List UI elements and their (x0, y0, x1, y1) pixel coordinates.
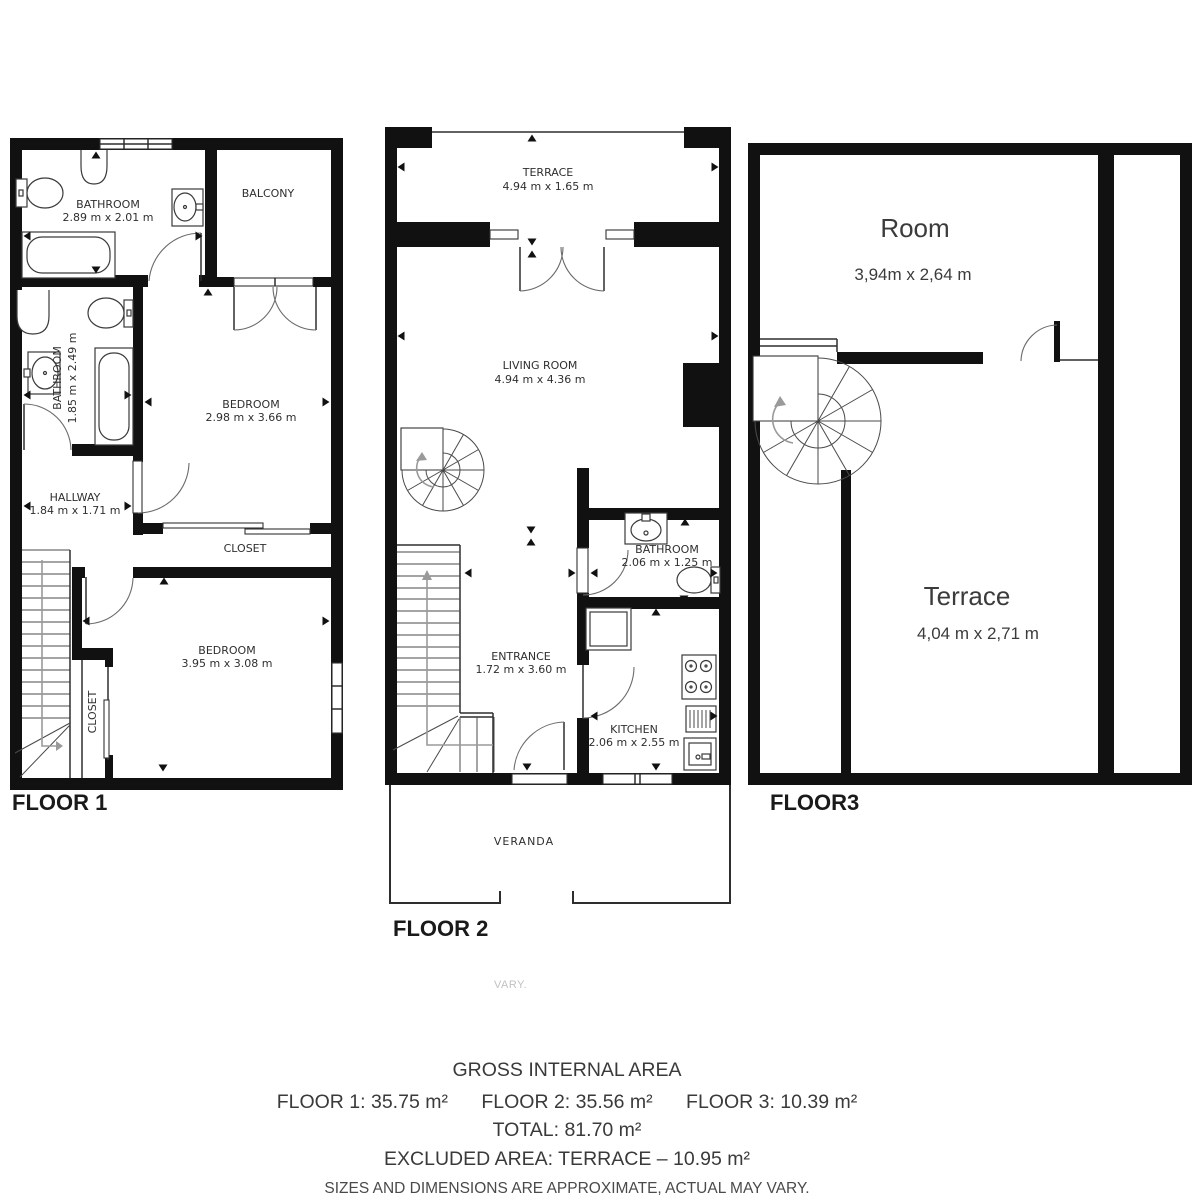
floor2-staircase (393, 545, 494, 773)
stray-text: VARY. (494, 979, 527, 991)
floor3-spiral-staircase (753, 356, 881, 484)
room-dims-room: 3,94m x 2,64 m (854, 265, 971, 284)
floor2-spiral-staircase (401, 428, 484, 511)
hallway-door (133, 461, 189, 513)
floor1-staircase (15, 550, 82, 778)
floor1-plan: BATHROOM 2.89 m x 2.01 m BALCONY BATHROO… (10, 138, 343, 815)
room-label-terrace3: Terrace (924, 581, 1011, 611)
stove-icon (682, 655, 716, 699)
gross-area-title: GROSS INTERNAL AREA (0, 1059, 1134, 1082)
room-dims-bedroom-bottom: 3.95 m x 3.08 m (182, 657, 273, 670)
small-closet-sliding-door (104, 667, 109, 760)
floor2-area: FLOOR 2: 35.56 m² (481, 1091, 652, 1114)
balcony-double-door (234, 278, 316, 330)
floorplan-page: BATHROOM 2.89 m x 2.01 m BALCONY BATHROO… (0, 0, 1200, 1200)
room-label-bedroom-top: BEDROOM (222, 398, 279, 411)
floor-areas-line: FLOOR 1: 35.75 m² FLOOR 2: 35.56 m² FLOO… (0, 1091, 1134, 1114)
room-label-closet-small: CLOSET (86, 690, 99, 733)
room-dims-kitchen: 2.06 m x 2.55 m (589, 736, 680, 749)
room-door-arc (1021, 325, 1057, 361)
room-dims-hallway: 1.84 m x 1.71 m (30, 504, 121, 517)
bidet-icon (17, 290, 49, 334)
room-label-entrance: ENTRANCE (491, 650, 551, 663)
landing-edge (760, 339, 837, 352)
room-dims-living: 4.94 m x 4.36 m (495, 373, 586, 386)
floor3-title: FLOOR3 (770, 790, 859, 815)
floor3-plan: Room 3,94m x 2,64 m Terrace 4,04 m x 2,7… (748, 143, 1192, 815)
kitchen-cabinet (586, 608, 631, 650)
room-label-hallway: HALLWAY (50, 491, 101, 504)
disclaimer-line: SIZES AND DIMENSIONS ARE APPROXIMATE, AC… (0, 1180, 1134, 1198)
room-label-living: LIVING ROOM (503, 359, 578, 372)
bathroom1-door (148, 233, 201, 287)
bathroom2-door (22, 404, 72, 456)
room-dims-bathroom-side: 1.85 m x 2.49 m (66, 333, 79, 424)
floor2-title: FLOOR 2 (393, 916, 488, 941)
floor1-window-bedroom (332, 663, 342, 733)
fridge-icon (684, 738, 716, 770)
sink-icon (625, 513, 667, 544)
floor2-plan: TERRACE 4.94 m x 1.65 m LIVING ROOM 4.94… (385, 127, 731, 941)
excluded-area-line: EXCLUDED AREA: TERRACE – 10.95 m² (0, 1148, 1134, 1171)
room-dims-bathroom: 2.06 m x 1.25 m (622, 556, 713, 569)
floorplan-canvas: BATHROOM 2.89 m x 2.01 m BALCONY BATHROO… (0, 0, 1200, 1200)
total-area-line: TOTAL: 81.70 m² (0, 1119, 1134, 1142)
vanity-sink-icon (172, 189, 203, 226)
room-dims-terrace3: 4,04 m x 2,71 m (917, 624, 1039, 643)
room-label-closet: CLOSET (224, 542, 267, 555)
room-label-room: Room (880, 213, 949, 243)
toilet-icon (16, 178, 63, 208)
floor1-title: FLOOR 1 (12, 790, 107, 815)
room-label-veranda: VERANDA (494, 835, 554, 848)
room-dims-bedroom-top: 2.98 m x 3.66 m (206, 411, 297, 424)
room-label-terrace: TERRACE (522, 166, 574, 179)
room-label-bathroom-top: BATHROOM (76, 198, 140, 211)
closet-sliding-door (163, 523, 310, 534)
kitchen-window (603, 774, 672, 784)
room-label-bathroom: BATHROOM (635, 543, 699, 556)
floor1-area: FLOOR 1: 35.75 m² (277, 1091, 448, 1114)
room-label-kitchen: KITCHEN (610, 723, 658, 736)
bedroom2-door (85, 567, 133, 624)
room-dims-terrace: 4.94 m x 1.65 m (503, 180, 594, 193)
room-label-bedroom-bottom: BEDROOM (198, 644, 255, 657)
room-label-bathroom-side: BATHROOM (51, 346, 64, 410)
room-label-balcony: BALCONY (242, 187, 295, 200)
bathtub-icon (22, 232, 115, 278)
veranda-outline (390, 785, 730, 903)
toilet-icon (88, 298, 133, 328)
floor3-walls (748, 143, 1192, 785)
floor3-area: FLOOR 3: 10.39 m² (686, 1091, 857, 1114)
room-dims-entrance: 1.72 m x 3.60 m (476, 663, 567, 676)
floor1-window-top (100, 139, 172, 149)
front-door (512, 722, 567, 784)
room-dims-bathroom-top: 2.89 m x 2.01 m (63, 211, 154, 224)
terrace-french-doors (490, 230, 634, 291)
bathroom-door (577, 548, 628, 595)
kitchen-door (577, 665, 634, 718)
